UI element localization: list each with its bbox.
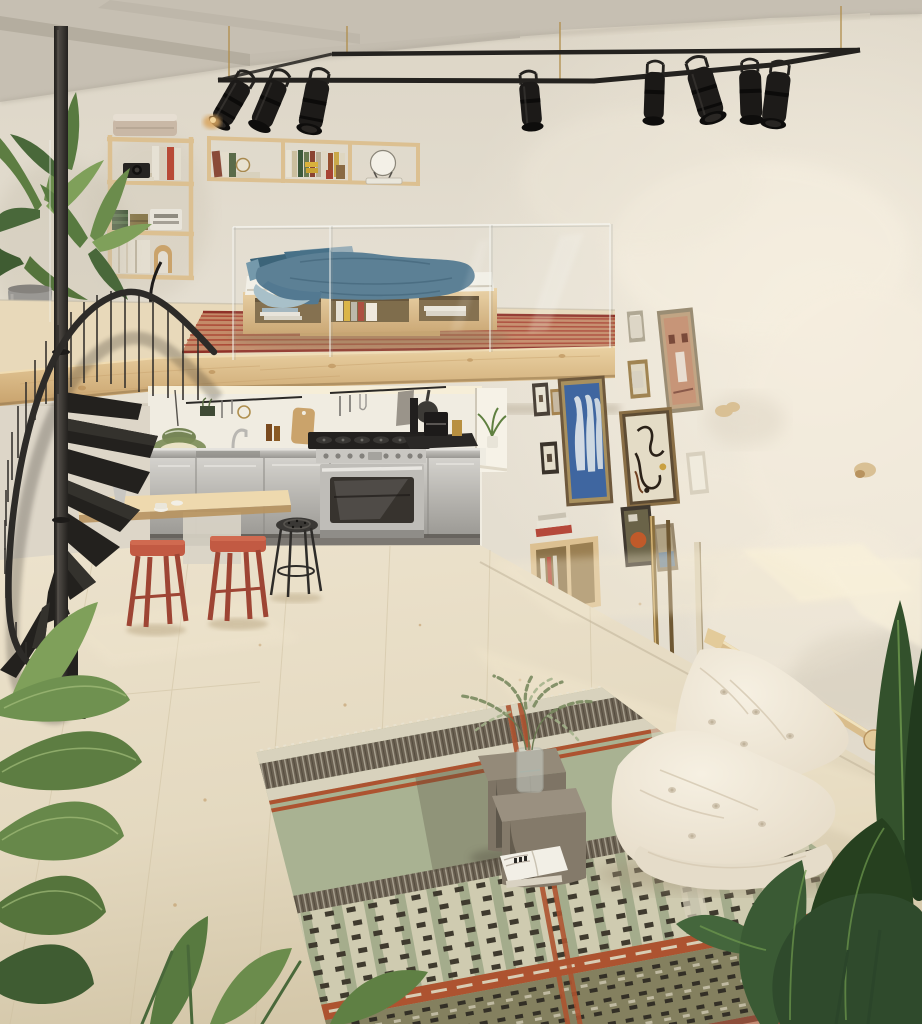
brass-canister <box>452 420 462 436</box>
oil-bottle <box>266 424 272 441</box>
table-clock <box>237 159 250 172</box>
scene-canvas <box>0 0 922 1024</box>
bottle <box>479 448 486 465</box>
loft-interior-photo <box>0 0 922 1024</box>
typewriter <box>150 209 182 230</box>
staircase-pole <box>54 26 68 718</box>
gallery-frame-blue-figures <box>558 375 614 506</box>
window-niche <box>476 388 507 472</box>
spotlight-glow-core <box>210 117 216 123</box>
oven-handle <box>322 468 422 470</box>
sink <box>196 451 260 457</box>
folded-blankets <box>113 114 177 121</box>
gallery-small-frame <box>532 382 550 416</box>
dark-bottle <box>410 398 418 434</box>
gallery-small-frame <box>540 441 559 474</box>
oil-bottle <box>274 426 280 441</box>
gallery-frame-ink-abstract <box>619 407 680 508</box>
